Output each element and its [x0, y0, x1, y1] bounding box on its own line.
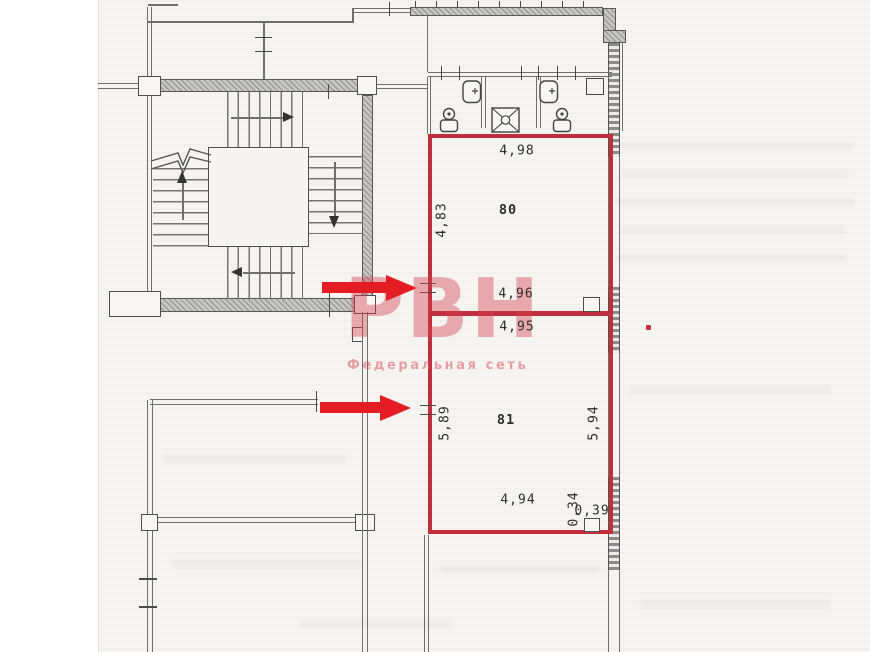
wall-segment [98, 83, 140, 89]
wall-segment [157, 517, 357, 523]
scan-noise [618, 142, 853, 150]
stair-arrow-left-icon [243, 272, 295, 274]
wall-tick [520, 1, 521, 7]
door-tick [420, 414, 436, 415]
scan-noise [172, 560, 362, 568]
window-tick [255, 51, 272, 52]
column [109, 291, 161, 317]
scan-noise [165, 455, 345, 463]
column [138, 76, 161, 96]
door-tick [521, 66, 522, 80]
exterior-wall [608, 570, 620, 652]
door-tick [329, 291, 330, 317]
door-tick [538, 66, 539, 80]
wall-segment [352, 8, 410, 13]
floor-plan-scan: 4,98 80 4,83 4,96 4,95 81 5,89 5,94 4,94… [0, 0, 870, 652]
scan-noise [440, 565, 600, 573]
stair-top-wall [140, 79, 376, 92]
door-tick [459, 66, 460, 80]
wall-segment [148, 4, 178, 6]
room-number: 81 [497, 412, 515, 428]
wall-tick [457, 1, 458, 7]
dimension-label: 5,89 [438, 405, 453, 440]
scan-noise [622, 170, 848, 178]
sink-icon [539, 80, 559, 104]
door-tick [575, 66, 576, 80]
wall-segment [150, 399, 318, 405]
annotation-arrow-shaft [322, 282, 386, 293]
door-tick [441, 66, 442, 80]
dimension-label: 4,95 [499, 320, 534, 335]
column [357, 76, 377, 95]
window-tick [255, 37, 272, 38]
wall-tick [415, 1, 416, 7]
stair-arrow-left-head-icon [231, 267, 242, 277]
dimension-label: 5,94 [587, 405, 602, 440]
annotation-arrow-icon [380, 395, 411, 421]
wall-segment [376, 84, 428, 89]
window-tick [139, 578, 157, 580]
door-tick [316, 391, 317, 412]
bathroom-wall [428, 72, 612, 77]
exterior-wall [603, 8, 616, 32]
scan-noise [616, 198, 854, 206]
wall-tick [562, 1, 563, 7]
stair-arrow-down-icon [334, 162, 336, 217]
toilet-icon [552, 106, 572, 133]
stair-arrow-up-head-icon [177, 171, 187, 183]
wall-tick [583, 1, 584, 7]
scan-noise [630, 386, 830, 394]
red-dot-mark [646, 325, 651, 330]
door-tick [328, 84, 329, 99]
column [583, 297, 600, 312]
exterior-wall [603, 30, 626, 43]
toilet-icon [439, 106, 459, 133]
stair-arrow-right-head-icon [283, 112, 294, 122]
wall-tick [499, 1, 500, 7]
dimension-label: 4,96 [498, 287, 533, 302]
wall-segment [148, 21, 354, 23]
shower-tray-icon [491, 107, 520, 133]
exterior-wall [410, 7, 603, 16]
wall-tick [478, 1, 479, 7]
dimension-label: 4,98 [499, 144, 534, 159]
stair-arrow-down-head-icon [329, 216, 339, 228]
dimension-label: 4,83 [435, 202, 450, 237]
watermark-subtitle: Федеральная сеть [347, 358, 528, 373]
sink-icon [462, 80, 482, 104]
wall-segment [427, 14, 428, 72]
scan-noise [621, 226, 845, 234]
cabinet [586, 78, 604, 95]
door-tick [389, 2, 390, 16]
annotation-arrow-shaft [320, 402, 380, 413]
scan-noise [640, 600, 830, 608]
scan-noise [617, 254, 847, 262]
stair-landing [208, 147, 309, 247]
wall-tick [541, 1, 542, 7]
bathroom-wall [427, 77, 431, 134]
scan-noise [300, 620, 450, 628]
wall-tick [436, 1, 437, 7]
room-number: 80 [499, 202, 517, 218]
wall-segment [424, 535, 429, 652]
window-tick [139, 606, 157, 608]
column [584, 518, 600, 532]
stair-arrow-up-icon [182, 182, 184, 220]
door-tick [420, 405, 436, 406]
dimension-label: 0,39 [574, 504, 609, 519]
annotation-arrow-icon [386, 275, 417, 301]
door-tick [557, 66, 558, 80]
column [141, 514, 158, 531]
stair-arrow-right-icon [231, 117, 283, 119]
dimension-label: 4,94 [500, 493, 535, 508]
